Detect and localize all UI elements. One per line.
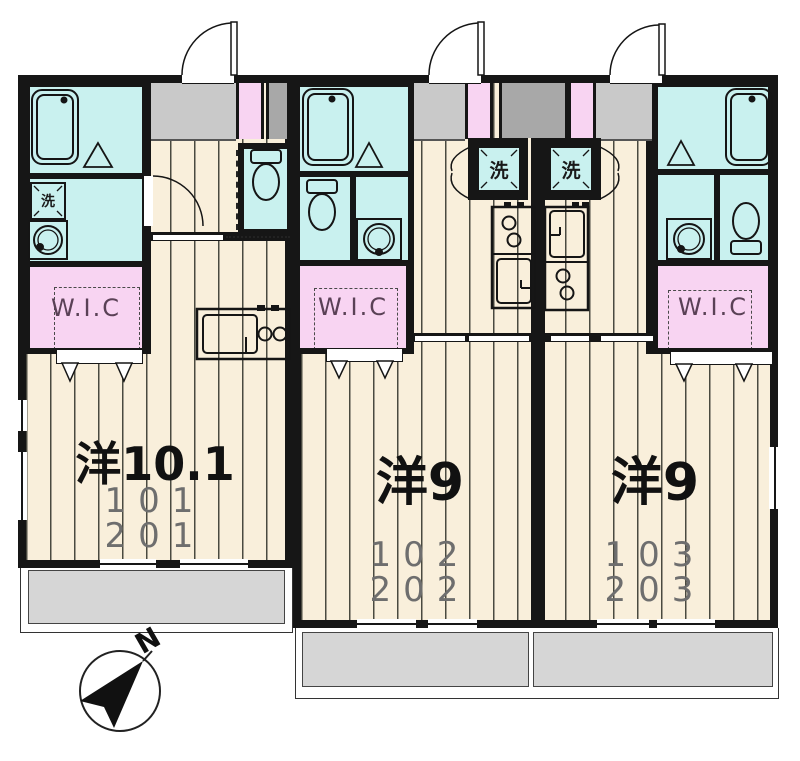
window-east-1	[769, 447, 780, 509]
toilet-room-left	[238, 143, 293, 235]
wic-middle-door	[326, 348, 403, 362]
washer-left-label: 洗	[41, 191, 55, 211]
entry-right	[596, 83, 654, 139]
partition-right-door1	[550, 335, 590, 342]
toilet-room-right	[714, 169, 774, 266]
entrance-door-right	[610, 24, 665, 75]
toilet-room-middle	[294, 171, 356, 266]
balcony-middle	[302, 632, 529, 687]
room-numbers-left: 101 201	[60, 484, 250, 553]
washroom-middle	[350, 171, 414, 266]
compass-icon	[80, 651, 160, 731]
balcony-left	[28, 570, 285, 624]
wic-middle-label: W.I.C	[318, 293, 388, 321]
partition-middle-door1	[414, 335, 466, 342]
partition-left-track	[226, 236, 290, 238]
entry-step-right	[596, 139, 654, 141]
room-label-right: 洋9	[570, 440, 740, 515]
center-column	[499, 83, 568, 138]
entry-step-middle	[406, 139, 465, 141]
column-left	[266, 83, 290, 139]
bathroom-right	[652, 81, 774, 175]
window-middle-1	[357, 619, 416, 629]
room-label-middle: 洋9	[335, 440, 505, 515]
entrance-gap-left	[182, 75, 234, 84]
entrance-gap-right	[610, 75, 662, 84]
wic-right-door	[670, 351, 773, 365]
floor-plan: W.I.C W.I.C W.I.C 洗 洗 洗	[0, 0, 800, 761]
partition-right-door2	[600, 335, 654, 342]
toilet-left-door	[236, 150, 238, 230]
washer-left: 洗	[30, 182, 66, 220]
entrance-door-middle	[429, 22, 484, 75]
partition-left-door	[152, 234, 224, 241]
window-west-1	[16, 400, 27, 431]
entry-step-left	[151, 139, 236, 141]
window-right-1	[597, 619, 649, 629]
wic-middle: W.I.C	[294, 260, 412, 354]
shoe-closet-middle	[465, 83, 493, 139]
entry-left	[151, 83, 236, 139]
entrance-gap-middle	[429, 75, 481, 84]
balcony-right	[533, 632, 773, 687]
shoe-closet-left	[236, 83, 264, 139]
wic-left-label: W.I.C	[51, 294, 121, 322]
bathroom-left	[24, 81, 148, 179]
window-middle-2	[428, 619, 477, 629]
washer-middle: 洗	[477, 146, 521, 192]
window-right-2	[657, 619, 715, 629]
bathroom-middle	[294, 81, 414, 177]
washroom-right	[652, 169, 720, 266]
washer-middle-label: 洗	[489, 156, 508, 183]
washer-right-label: 洗	[561, 156, 580, 183]
partition-middle-door2	[468, 335, 530, 342]
wic-left-door	[56, 349, 143, 364]
wic-right: W.I.C	[652, 260, 774, 354]
washroom-left-door-gap	[144, 176, 153, 226]
washer-right: 洗	[549, 146, 593, 192]
room-number: 201	[60, 519, 250, 554]
room-number: 102	[330, 538, 510, 573]
room-numbers-right: 103 203	[565, 538, 745, 607]
room-number: 203	[565, 573, 745, 608]
entry-middle	[406, 83, 465, 139]
room-number: 101	[60, 484, 250, 519]
room-numbers-middle: 102 202	[330, 538, 510, 607]
window-west-2	[16, 452, 27, 520]
room-number: 103	[565, 538, 745, 573]
entrance-door-left	[182, 22, 237, 75]
window-left-1	[100, 559, 156, 569]
wic-right-label: W.I.C	[678, 293, 748, 321]
window-left-2	[180, 559, 248, 569]
shoe-closet-right	[568, 83, 596, 139]
wic-left: W.I.C	[24, 261, 148, 354]
room-number: 202	[330, 573, 510, 608]
